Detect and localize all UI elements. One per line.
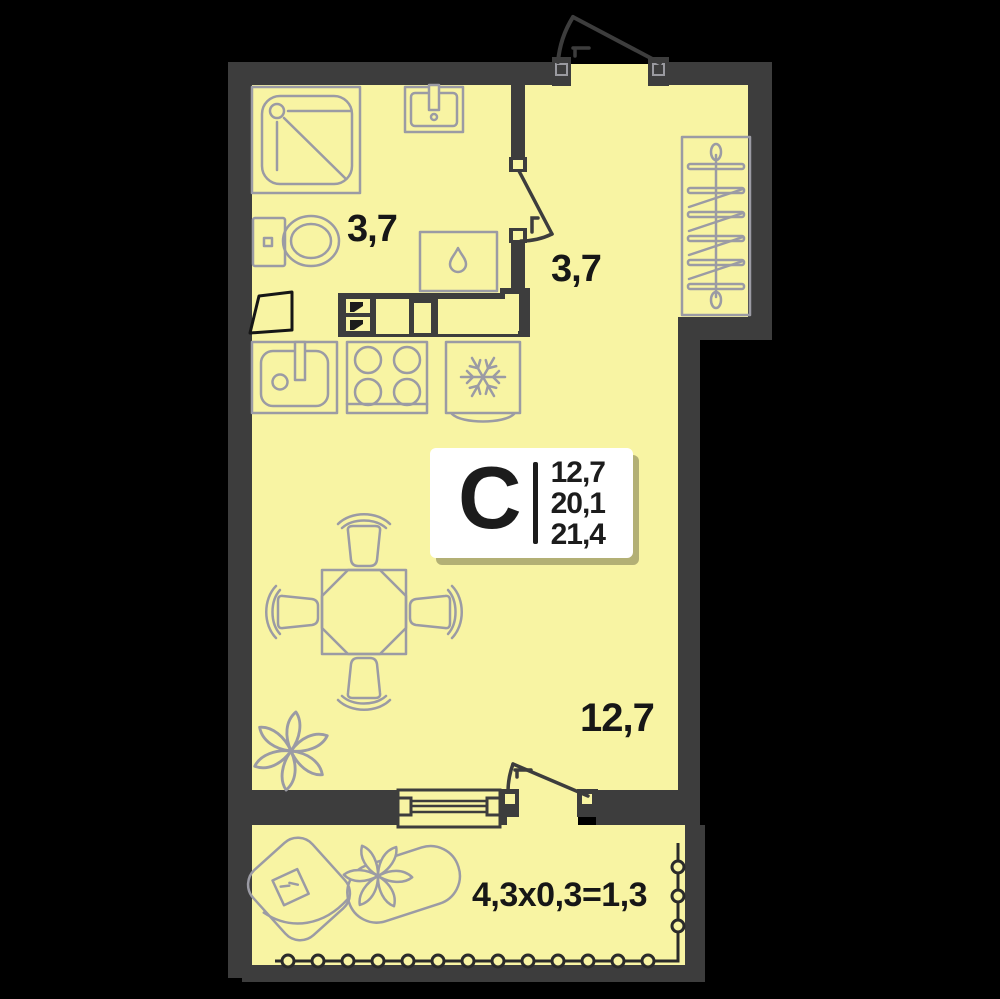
unit-type-label: С xyxy=(458,454,520,542)
unit-info-box: С 12,7 20,1 21,4 xyxy=(430,448,633,558)
bathroom-area-label: 3,7 xyxy=(347,208,397,251)
balcony-area-label: 4,3x0,3=1,3 xyxy=(472,876,647,915)
floor-plan: 3,7 3,7 12,7 4,3x0,3=1,3 С 12,7 20,1 21,… xyxy=(0,0,1000,999)
unit-area-stats: 12,7 20,1 21,4 xyxy=(551,457,605,550)
hallway-area-label: 3,7 xyxy=(551,248,601,291)
total-area-value: 21,4 xyxy=(551,519,605,550)
living-room-area-label: 12,7 xyxy=(580,696,654,741)
info-divider xyxy=(533,462,538,544)
living-area-value: 12,7 xyxy=(551,457,605,488)
area-value: 20,1 xyxy=(551,488,605,519)
